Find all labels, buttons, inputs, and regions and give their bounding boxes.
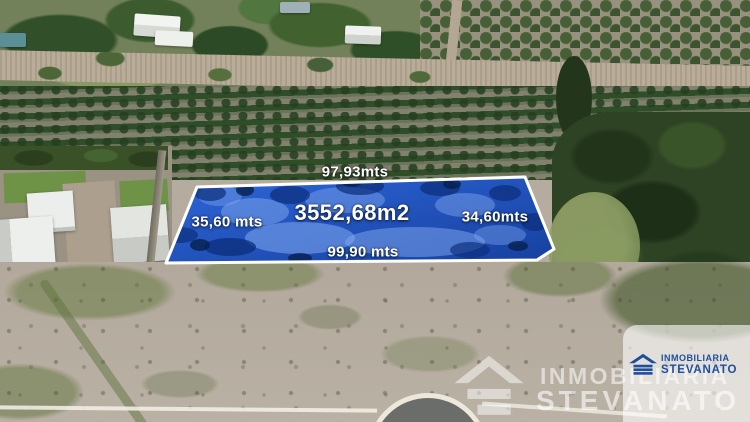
watermark-line2: STEVANATO xyxy=(536,385,740,417)
brand-line1: INMOBILIARIA xyxy=(661,354,737,363)
house-icon xyxy=(452,350,526,422)
plot-area-label: 3552,68m2 xyxy=(295,200,410,226)
plot-left-width-label: 35,60 mts xyxy=(191,214,262,231)
brand-name: INMOBILIARIA STEVANATO xyxy=(661,354,737,377)
aerial-photo: 97,93mts 3552,68m2 99,90 mts 35,60 mts 3… xyxy=(0,0,750,422)
plot-bottom-length-label: 99,90 mts xyxy=(327,244,398,261)
plot-right-width-label: 34,60mts xyxy=(462,209,529,226)
plot-top-length-label: 97,93mts xyxy=(322,164,389,181)
house-icon xyxy=(628,353,658,375)
brand-line2: STEVANATO xyxy=(661,365,737,377)
